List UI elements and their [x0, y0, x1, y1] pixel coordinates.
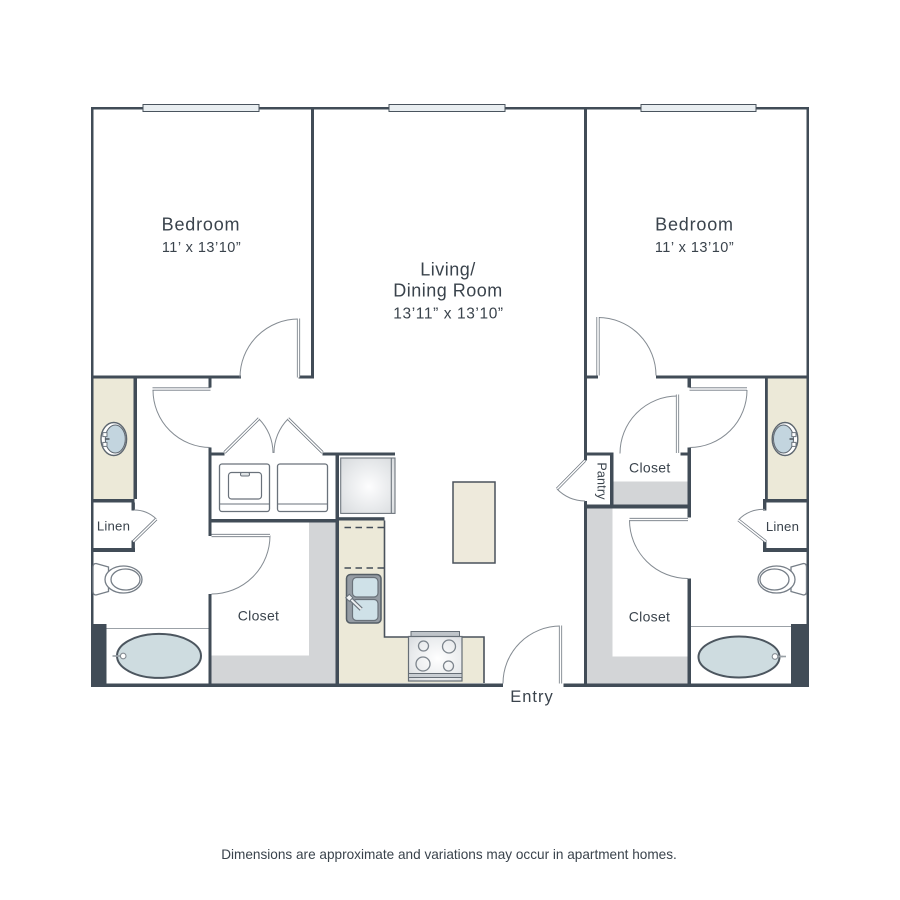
svg-text:Dining Room: Dining Room — [393, 281, 503, 301]
svg-text:11’ x 13’10”: 11’ x 13’10” — [655, 240, 734, 256]
svg-text:Living/: Living/ — [420, 260, 476, 280]
svg-text:Linen: Linen — [766, 519, 799, 534]
svg-text:Bedroom: Bedroom — [655, 215, 734, 235]
svg-text:Closet: Closet — [629, 609, 670, 625]
svg-text:Closet: Closet — [629, 460, 670, 476]
svg-text:Linen: Linen — [97, 518, 130, 533]
svg-text:Entry: Entry — [510, 688, 554, 706]
svg-text:Closet: Closet — [238, 608, 279, 624]
svg-text:Pantry: Pantry — [594, 462, 608, 500]
svg-text:11’ x 13’10”: 11’ x 13’10” — [162, 240, 241, 256]
svg-text:Bedroom: Bedroom — [162, 215, 241, 235]
svg-text:13’11” x 13’10”: 13’11” x 13’10” — [393, 305, 503, 322]
svg-text:Dimensions are approximate and: Dimensions are approximate and variation… — [221, 847, 677, 862]
